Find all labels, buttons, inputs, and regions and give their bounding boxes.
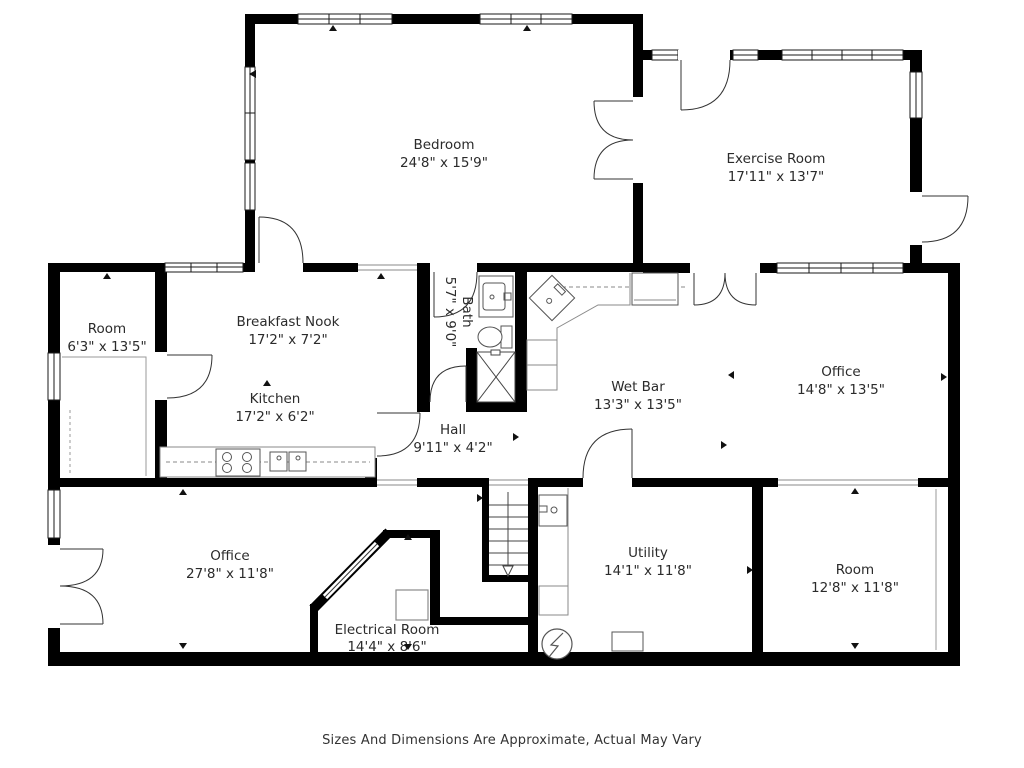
wall-segment [417, 263, 430, 412]
dimension-marker [513, 433, 519, 441]
dimension-marker [851, 488, 859, 494]
door-exercise-east [922, 196, 968, 242]
window [48, 353, 60, 400]
wall-segment [48, 263, 643, 272]
stairs [489, 492, 528, 576]
electrical-panel-icon [396, 590, 428, 620]
stairs-down-arrow-icon [503, 566, 513, 576]
stove-icon [216, 449, 260, 476]
door-exercise-north [681, 60, 730, 110]
door-bedroom-double [594, 101, 633, 179]
room-label-bedroom: Bedroom24'8" x 15'9" [400, 137, 488, 171]
dimension-marker [721, 441, 727, 449]
door-bath-south [430, 366, 466, 402]
room-label-utility: Utility14'1" x 11'8" [604, 545, 692, 579]
room-label-hall: Hall9'11" x 4'2" [413, 422, 492, 456]
dimension-marker [523, 25, 531, 31]
wall-segment [752, 478, 763, 658]
toilet-icon [478, 326, 512, 348]
window [298, 14, 392, 24]
wall-segment [430, 530, 440, 625]
wet-bar-sink-icon [529, 275, 574, 320]
disclaimer-text: Sizes And Dimensions Are Approximate, Ac… [0, 733, 1024, 748]
room-label-breakfast-nook: Breakfast Nook17'2" x 7'2" [237, 314, 340, 348]
window [782, 50, 903, 60]
floor-plan: Bedroom24'8" x 15'9" Exercise Room17'11"… [0, 0, 1024, 768]
room-label-kitchen: Kitchen17'2" x 6'2" [235, 391, 314, 425]
door-office-french [60, 549, 103, 624]
wall-segment [528, 478, 538, 654]
room-label-wet-bar: Wet Bar13'3" x 13'5" [594, 379, 682, 413]
dimension-marker [329, 25, 337, 31]
dimension-marker [728, 371, 734, 379]
window [245, 67, 255, 160]
door-wet-bar-double [694, 273, 756, 305]
wall-segment [48, 652, 960, 666]
window [325, 544, 377, 597]
wall-segment [482, 483, 489, 580]
utility-sink-icon [539, 495, 567, 526]
window [480, 14, 572, 24]
room-label-electrical-room: Electrical Room14'4" x 8'6" [335, 622, 440, 655]
window [777, 263, 903, 273]
room-label-exercise-room: Exercise Room17'11" x 13'7" [727, 151, 826, 185]
wall-segment [383, 530, 440, 538]
window [245, 163, 255, 210]
dimension-marker [103, 273, 111, 279]
bathroom-sink-icon [479, 276, 513, 317]
room-label-room-lower-right: Room12'8" x 11'8" [811, 562, 899, 596]
dimension-marker [263, 380, 271, 386]
room-label-room-left: Room6'3" x 13'5" [67, 321, 146, 355]
floor-plan-drawing: Bedroom24'8" x 15'9" Exercise Room17'11"… [0, 0, 1024, 768]
wall-segment [466, 348, 477, 402]
window [165, 263, 243, 272]
wall-segment [948, 263, 960, 663]
wet-bar-fridge-icon [632, 273, 678, 305]
shower-icon [477, 350, 515, 402]
wall-segment [482, 575, 538, 582]
water-heater-icon [542, 629, 572, 659]
room-label-office-lower: Office27'8" x 11'8" [186, 548, 274, 582]
window [733, 50, 758, 60]
doors [60, 60, 968, 624]
dimension-marker [941, 373, 947, 381]
door-room-left [167, 355, 212, 398]
window [652, 50, 678, 60]
utility-appliance-icon [612, 632, 643, 651]
dimension-marker [179, 643, 187, 649]
dimension-marker [851, 643, 859, 649]
dimension-marker [179, 489, 187, 495]
room-label-office-middle: Office14'8" x 13'5" [797, 364, 885, 398]
wall-segment [435, 617, 538, 625]
kitchen-counter [160, 447, 375, 477]
door-bedroom-south [259, 217, 303, 263]
room-label-bath: Bath5'7" x 9'0" [442, 277, 475, 348]
wall-segment [515, 263, 527, 412]
dimension-marker [377, 273, 385, 279]
door-wet-bar-south [583, 429, 632, 478]
window [910, 72, 922, 118]
window [48, 490, 60, 538]
